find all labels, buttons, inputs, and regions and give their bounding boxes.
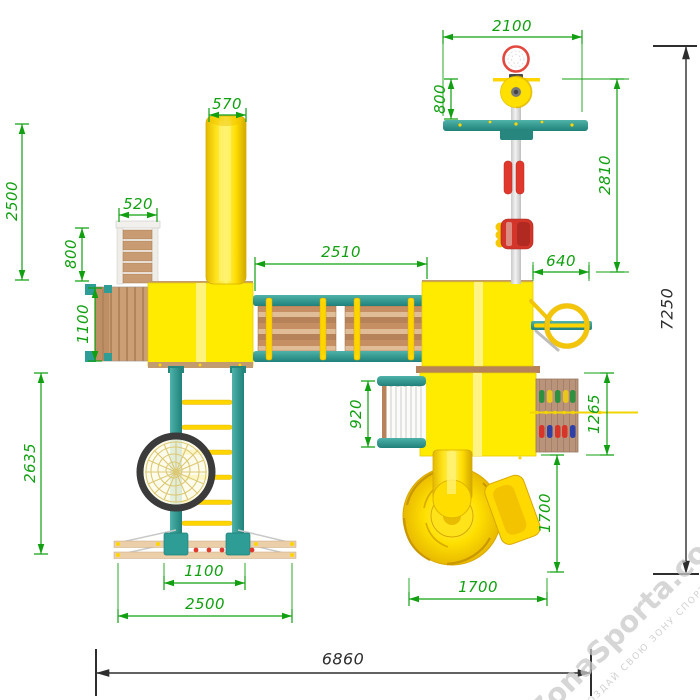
straight-slide xyxy=(206,116,246,284)
climbing-net xyxy=(377,376,426,448)
dim-label-1100-b: 1100 xyxy=(184,562,224,580)
steering-wheel xyxy=(531,301,592,350)
dim-label-7250: 7250 xyxy=(658,288,677,330)
entry-stairs xyxy=(116,221,160,284)
dim-label-800-left: 800 xyxy=(62,239,80,269)
swing-strap xyxy=(504,161,512,194)
upper-right-tower-roof xyxy=(416,280,540,373)
dim-label-920: 920 xyxy=(347,399,365,429)
dim-label-6860: 6860 xyxy=(322,650,364,669)
dim-2510 xyxy=(255,257,427,291)
technical-drawing: 570 520 2500 800 1100 2510 2100 800 2810… xyxy=(0,0,700,700)
nest-swing xyxy=(140,436,212,508)
ladder-frame xyxy=(114,366,296,559)
dim-label-1700-v: 1700 xyxy=(536,493,554,533)
lower-right-tower-roof xyxy=(420,373,536,460)
dim-label-570: 570 xyxy=(212,95,242,113)
left-tower-roof xyxy=(148,281,253,368)
dim-label-2510: 2510 xyxy=(321,243,361,261)
dim-label-2100: 2100 xyxy=(492,17,532,35)
dim-label-2500-b: 2500 xyxy=(185,595,225,613)
bridge xyxy=(253,295,424,362)
dim-label-1265: 1265 xyxy=(585,394,603,434)
dim-label-2500-left: 2500 xyxy=(3,181,21,221)
dim-label-640: 640 xyxy=(546,252,576,270)
spiral-slide xyxy=(403,450,543,565)
dim-label-1100-left: 1100 xyxy=(74,304,92,344)
basketball-hoop xyxy=(504,47,529,72)
dim-label-1700-h: 1700 xyxy=(458,578,498,596)
dim-label-2810: 2810 xyxy=(596,155,614,195)
basketball-mast xyxy=(443,47,588,285)
dim-label-800-right: 800 xyxy=(431,84,449,114)
swing-strap xyxy=(516,161,524,194)
swing-seat xyxy=(496,219,534,249)
playground-top-view xyxy=(0,0,700,700)
abacus-panel xyxy=(530,379,638,452)
dim-label-520: 520 xyxy=(123,195,153,213)
dim-label-2635: 2635 xyxy=(21,443,39,483)
